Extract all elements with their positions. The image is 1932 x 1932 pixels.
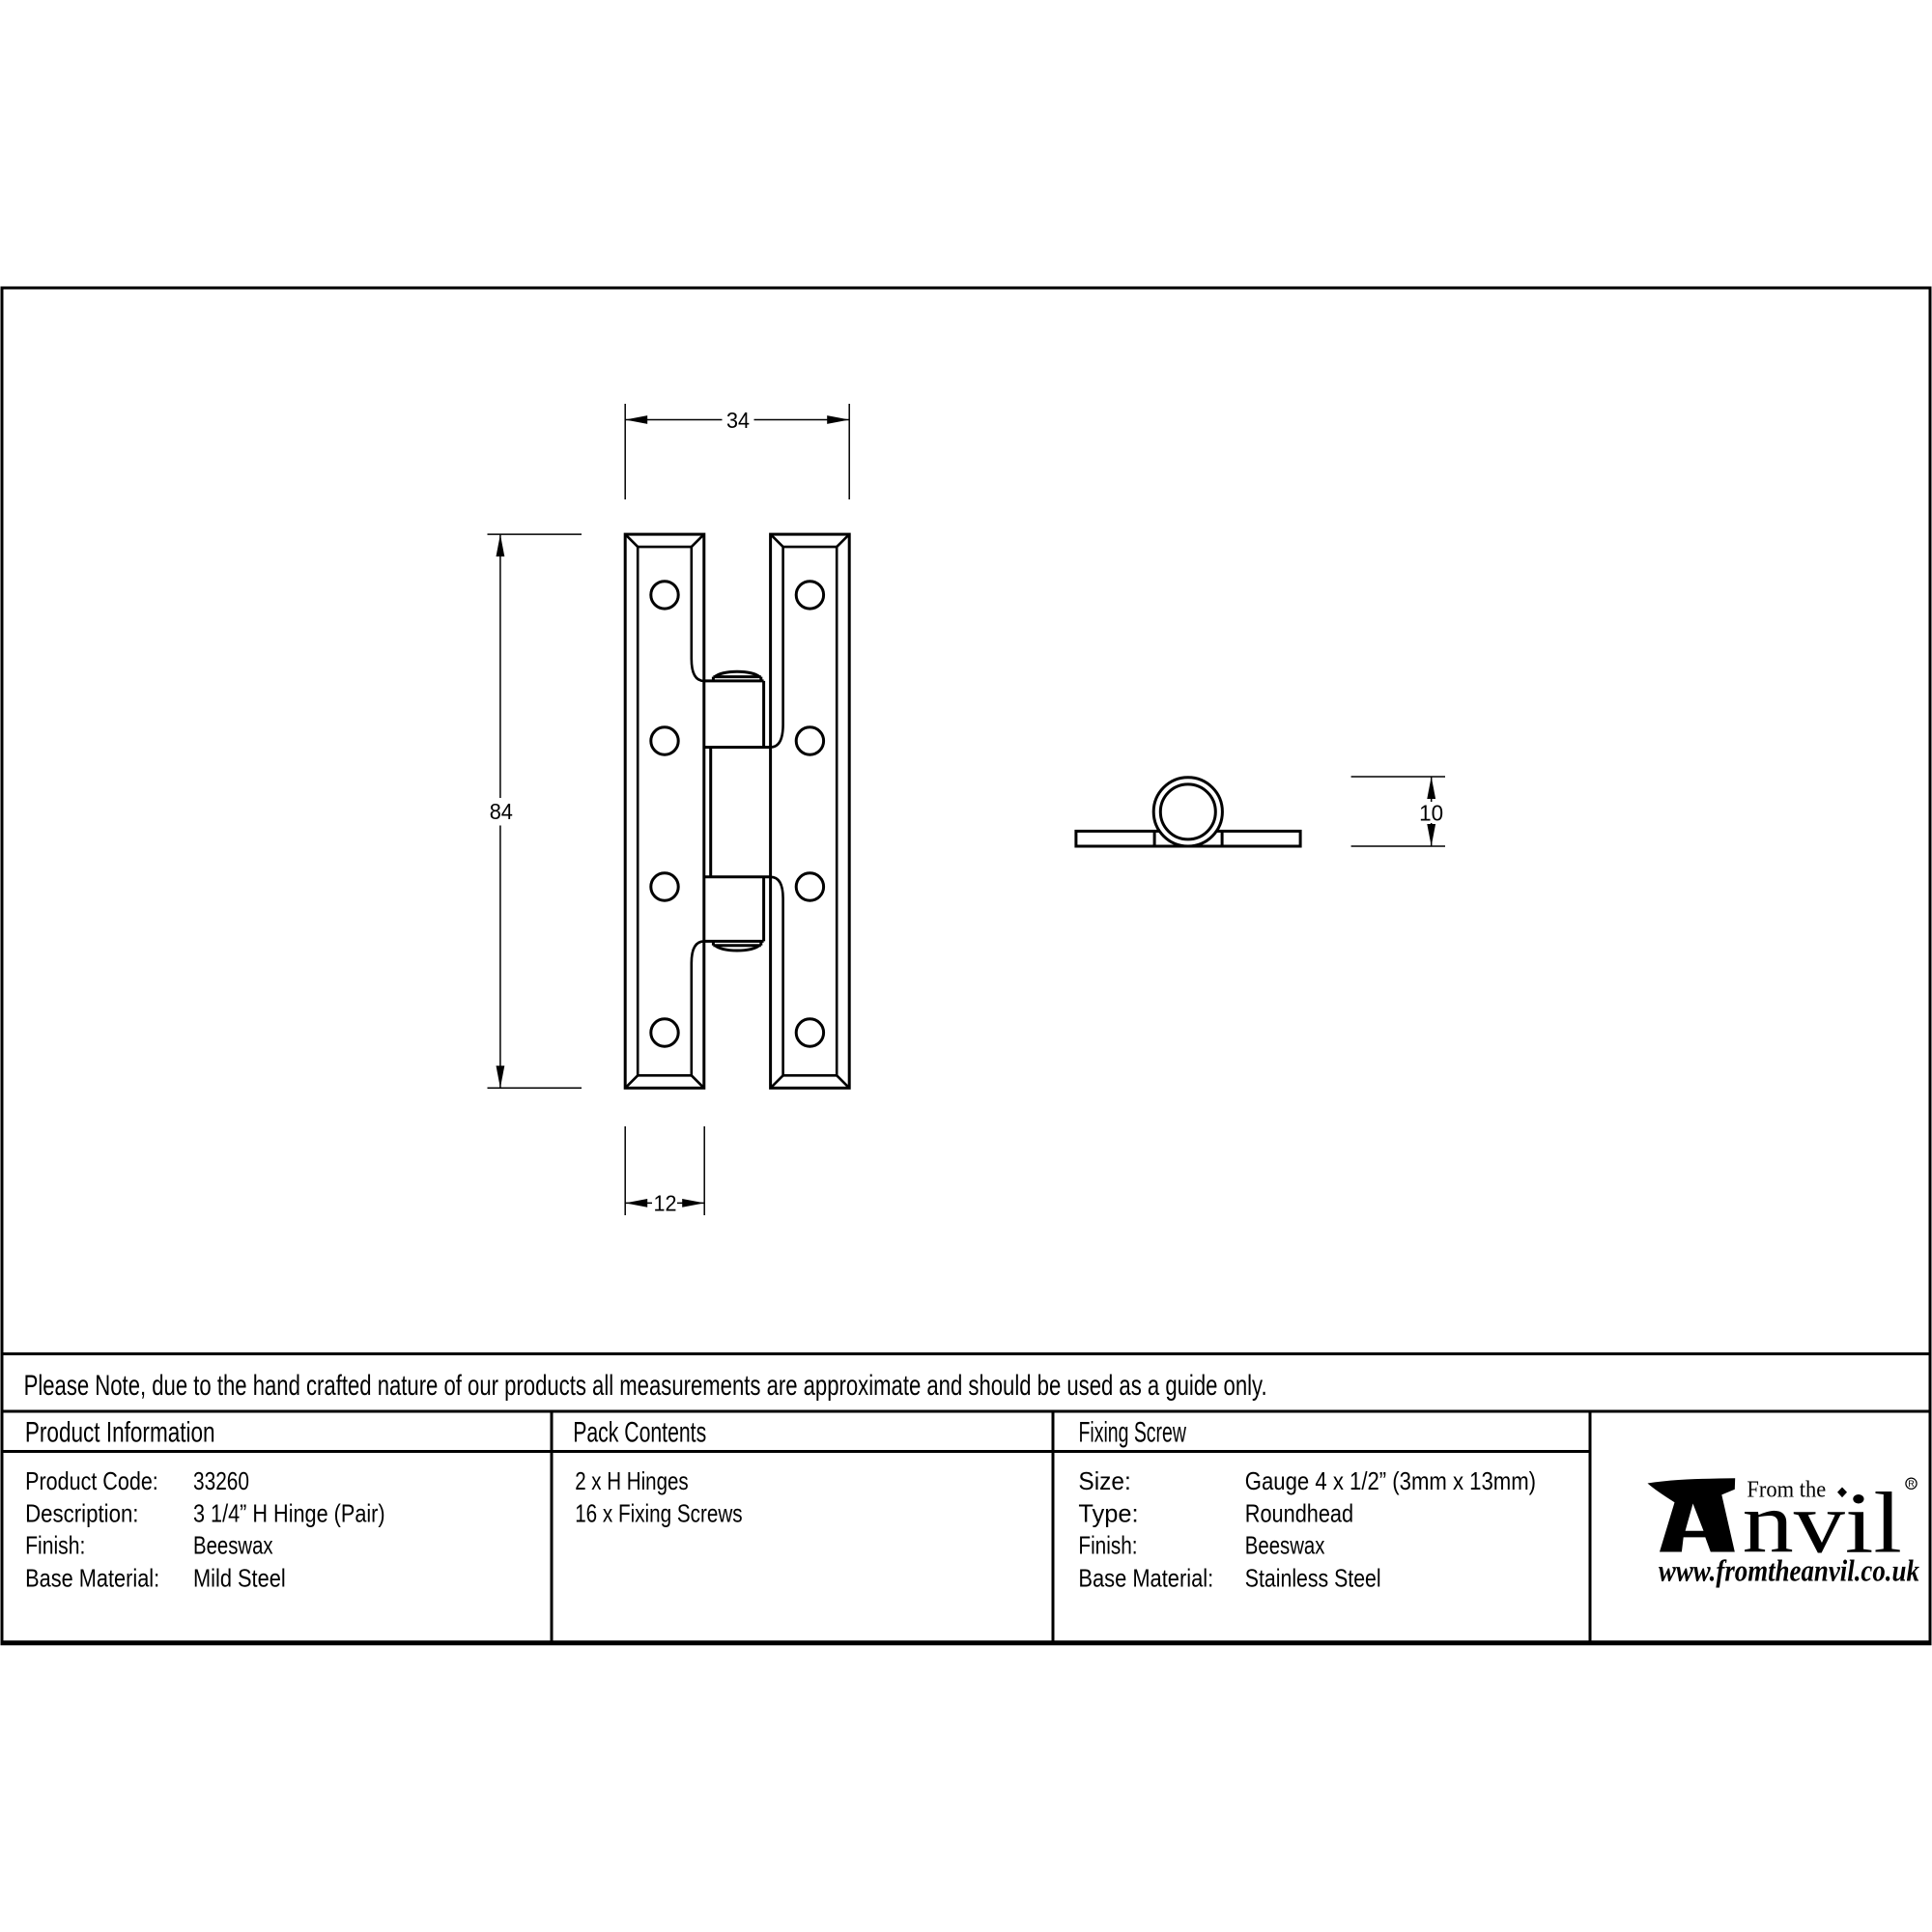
svg-text:Fixing Screw: Fixing Screw <box>1079 1416 1187 1448</box>
svg-text:3 1/4” H Hinge (Pair): 3 1/4” H Hinge (Pair) <box>193 1498 385 1527</box>
svg-text:Base Material:: Base Material: <box>1078 1564 1213 1593</box>
svg-text:Gauge 4 x 1/2” (3mm x 13mm): Gauge 4 x 1/2” (3mm x 13mm) <box>1245 1466 1536 1495</box>
svg-text:Pack Contents: Pack Contents <box>573 1416 706 1448</box>
svg-text:Stainless Steel: Stainless Steel <box>1245 1564 1381 1593</box>
svg-text:Roundhead: Roundhead <box>1245 1498 1353 1527</box>
svg-text:10: 10 <box>1419 801 1443 826</box>
svg-text:Base Material:: Base Material: <box>25 1564 159 1593</box>
svg-text:Beeswax: Beeswax <box>193 1531 273 1560</box>
svg-text:84: 84 <box>490 799 513 824</box>
svg-text:Beeswax: Beeswax <box>1245 1531 1325 1560</box>
svg-text:Size:: Size: <box>1078 1466 1130 1495</box>
svg-text:Finish:: Finish: <box>1078 1531 1137 1560</box>
svg-text:34: 34 <box>726 408 750 433</box>
svg-text:Finish:: Finish: <box>25 1531 85 1560</box>
svg-text:R: R <box>1908 1479 1915 1489</box>
svg-text:12: 12 <box>654 1191 677 1216</box>
svg-text:33260: 33260 <box>193 1466 249 1495</box>
svg-text:Type:: Type: <box>1078 1498 1138 1527</box>
svg-text:Mild Steel: Mild Steel <box>193 1564 286 1593</box>
svg-text:16 x Fixing Screws: 16 x Fixing Screws <box>575 1498 742 1527</box>
svg-text:Please Note, due to the hand c: Please Note, due to the hand crafted nat… <box>24 1370 1267 1402</box>
svg-text:www.fromtheanvil.co.uk: www.fromtheanvil.co.uk <box>1659 1553 1919 1588</box>
svg-text:2 x H Hinges: 2 x H Hinges <box>575 1466 689 1495</box>
svg-text:Product Code:: Product Code: <box>25 1466 158 1495</box>
svg-text:Product Information: Product Information <box>25 1416 215 1448</box>
svg-text:Description:: Description: <box>25 1498 138 1527</box>
